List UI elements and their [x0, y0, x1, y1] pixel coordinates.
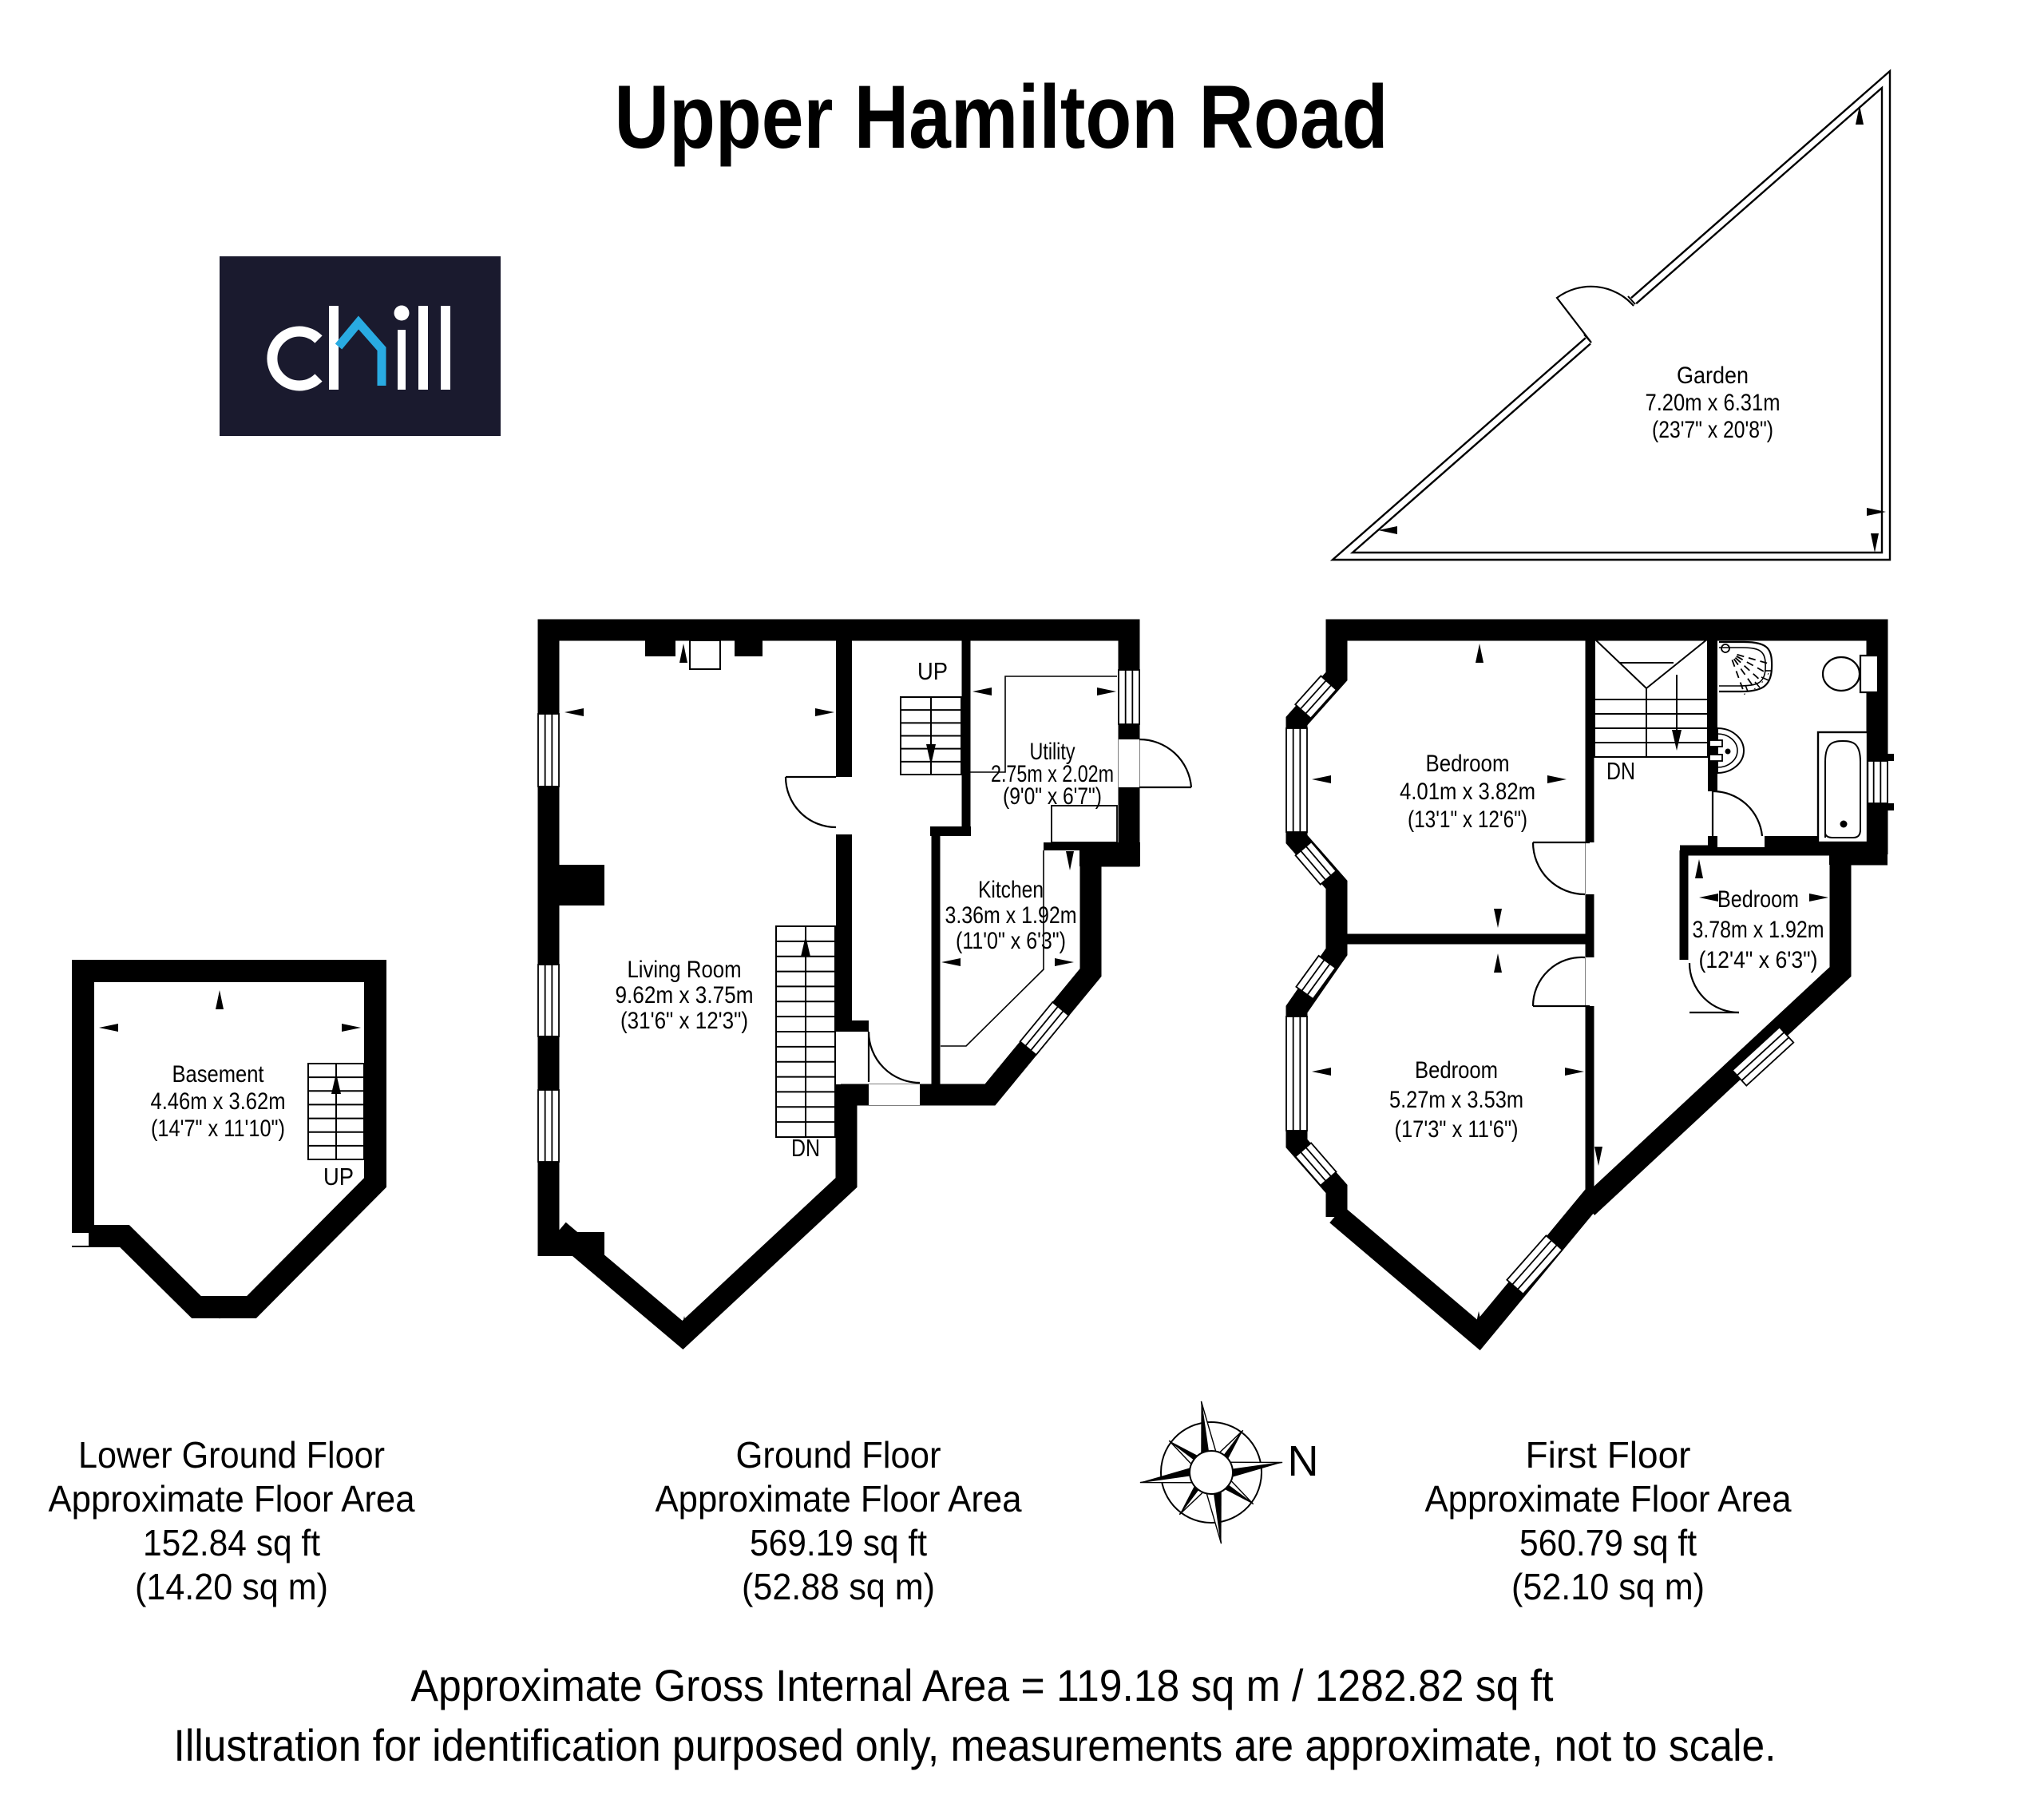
svg-text:Approximate Gross Internal Are: Approximate Gross Internal Area = 119.18… — [411, 1660, 1554, 1710]
svg-text:560.79 sq ft: 560.79 sq ft — [1519, 1522, 1697, 1563]
svg-text:(13'1" x 12'6"): (13'1" x 12'6") — [1408, 806, 1527, 833]
svg-text:(14.20 sq m): (14.20 sq m) — [135, 1566, 328, 1607]
svg-text:(52.88 sq m): (52.88 sq m) — [742, 1566, 935, 1607]
svg-text:Bedroom: Bedroom — [1717, 886, 1799, 913]
svg-text:Living Room: Living Room — [628, 957, 742, 983]
svg-text:(31'6" x 12'3"): (31'6" x 12'3") — [620, 1008, 748, 1034]
svg-text:Approximate Floor Area: Approximate Floor Area — [49, 1478, 415, 1520]
svg-text:(17'3" x 11'6"): (17'3" x 11'6") — [1395, 1116, 1519, 1143]
svg-text:Approximate Floor Area: Approximate Floor Area — [656, 1478, 1022, 1520]
svg-text:Bedroom: Bedroom — [1415, 1057, 1498, 1084]
svg-text:(11'0" x 6'3"): (11'0" x 6'3") — [956, 928, 1066, 954]
svg-text:3.78m x 1.92m: 3.78m x 1.92m — [1693, 917, 1824, 943]
svg-text:152.84 sq ft: 152.84 sq ft — [143, 1522, 320, 1563]
svg-text:4.01m x 3.82m: 4.01m x 3.82m — [1400, 779, 1535, 805]
svg-text:9.62m x 3.75m: 9.62m x 3.75m — [616, 982, 754, 1009]
svg-text:UP: UP — [917, 657, 948, 685]
svg-text:569.19 sq ft: 569.19 sq ft — [750, 1522, 927, 1563]
svg-text:N: N — [1288, 1437, 1319, 1485]
svg-text:3.36m x 1.92m: 3.36m x 1.92m — [945, 902, 1077, 929]
svg-text:Ground Floor: Ground Floor — [736, 1434, 941, 1476]
svg-text:7.20m x 6.31m: 7.20m x 6.31m — [1646, 390, 1781, 416]
svg-text:4.46m x 3.62m: 4.46m x 3.62m — [151, 1088, 286, 1115]
svg-text:Bedroom: Bedroom — [1426, 751, 1510, 777]
svg-text:(12'4" x 6'3"): (12'4" x 6'3") — [1699, 947, 1818, 973]
svg-text:(9'0" x 6'7"): (9'0" x 6'7") — [1003, 783, 1102, 810]
svg-text:UP: UP — [323, 1163, 354, 1191]
svg-text:DN: DN — [1606, 757, 1635, 785]
svg-text:(52.10 sq m): (52.10 sq m) — [1511, 1566, 1705, 1607]
svg-text:(23'7" x 20'8"): (23'7" x 20'8") — [1652, 417, 1773, 443]
svg-text:Garden: Garden — [1677, 363, 1749, 389]
svg-text:Approximate Floor Area: Approximate Floor Area — [1425, 1478, 1792, 1520]
svg-text:Lower Ground Floor: Lower Ground Floor — [78, 1434, 385, 1476]
svg-text:Illustration for identificatio: Illustration for identification purposed… — [174, 1720, 1777, 1770]
svg-text:5.27m x 3.53m: 5.27m x 3.53m — [1389, 1087, 1523, 1113]
svg-text:Kitchen: Kitchen — [978, 877, 1044, 903]
svg-text:DN: DN — [791, 1134, 820, 1162]
svg-text:Upper Hamilton Road: Upper Hamilton Road — [615, 67, 1388, 167]
svg-text:(14'7" x 11'10"): (14'7" x 11'10") — [151, 1116, 285, 1142]
svg-text:Basement: Basement — [172, 1061, 265, 1088]
svg-text:First Floor: First Floor — [1526, 1434, 1691, 1476]
